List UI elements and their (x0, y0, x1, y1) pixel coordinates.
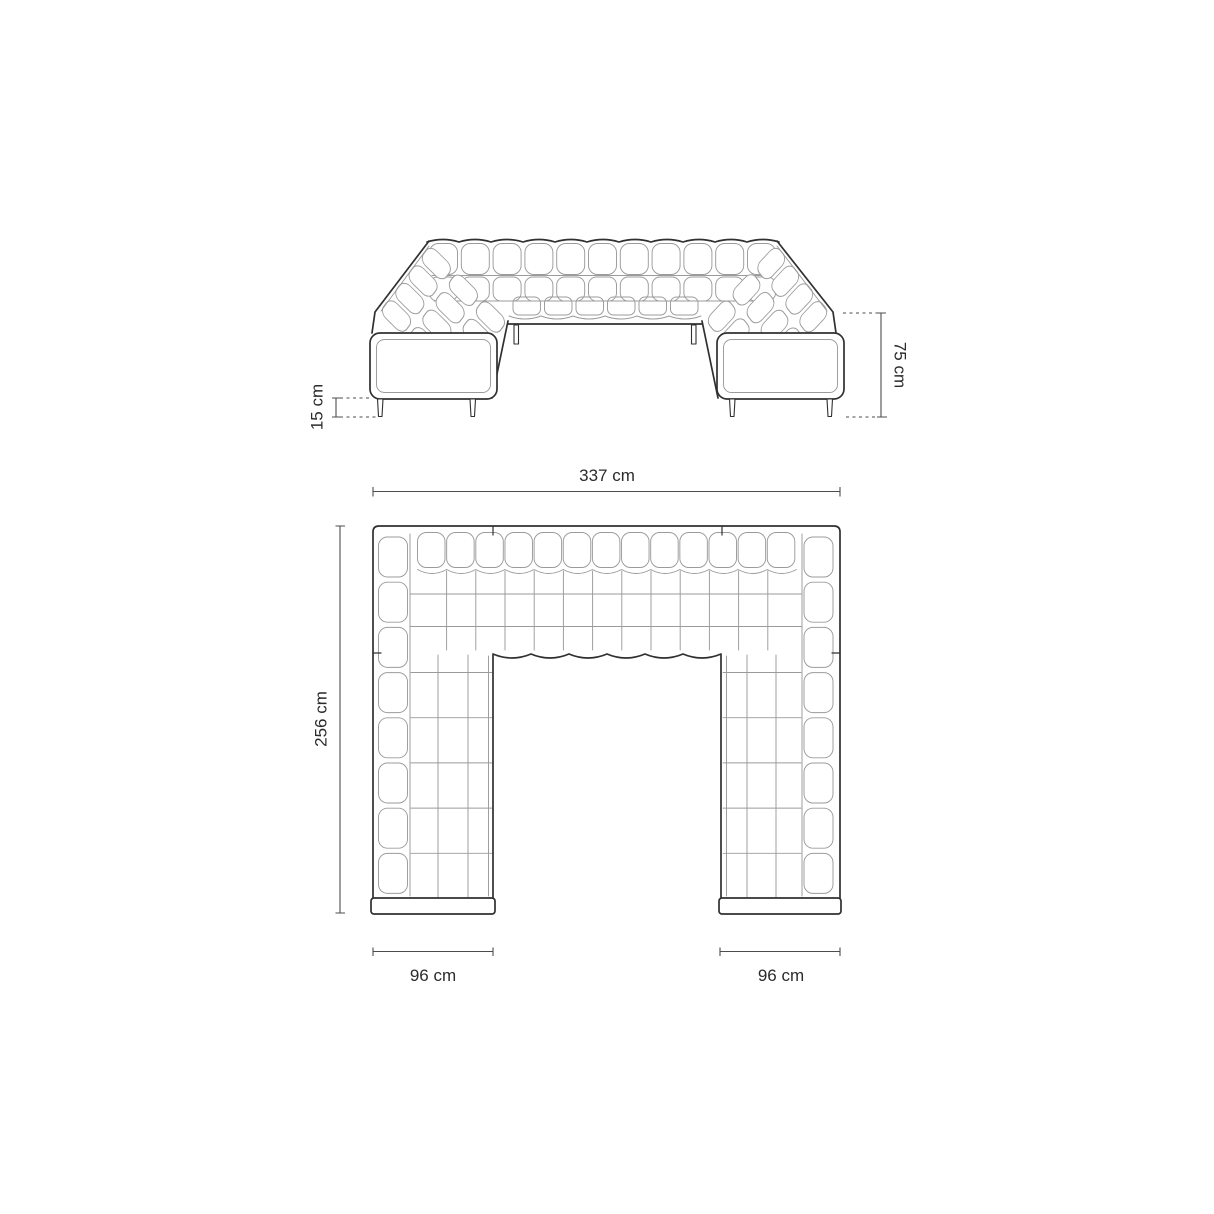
right-arm-width-dimension-label: 96 cm (758, 966, 804, 985)
plan-right-arm-cushions (804, 537, 833, 893)
top-plan-view: 337 cm 256 cm 96 cm 96 cm (311, 466, 841, 985)
dimension-leg-height: 15 cm (307, 384, 377, 430)
left-arm-width-dimension-label: 96 cm (410, 966, 456, 985)
dimension-total-width: 337 cm (373, 466, 840, 497)
front-elevation-view: 15 cm 75 cm (307, 240, 909, 431)
total-height-dimension-label: 75 cm (891, 342, 910, 388)
diagram-canvas: 15 cm 75 cm (0, 0, 1214, 1214)
leg-height-dimension-label: 15 cm (307, 384, 326, 430)
dimension-total-depth: 256 cm (311, 526, 345, 913)
plan-module-joints (373, 526, 840, 653)
plan-sofa-outline (373, 526, 840, 898)
elevation-center-legs (514, 325, 696, 344)
dimension-right-arm-width: 96 cm (720, 948, 840, 986)
elevation-arm-panels (370, 333, 844, 399)
total-width-dimension-label: 337 cm (579, 466, 635, 485)
plan-tufting-grid (410, 534, 802, 897)
plan-left-arm-cushions (379, 537, 408, 893)
plan-back-cushions (418, 533, 795, 568)
plan-arm-end-caps (371, 898, 841, 914)
total-depth-dimension-label: 256 cm (311, 691, 330, 747)
dimension-left-arm-width: 96 cm (373, 948, 493, 986)
elevation-panel-legs (378, 399, 833, 417)
dimension-total-height: 75 cm (843, 313, 910, 417)
sofa-dimension-diagram: 15 cm 75 cm (0, 0, 1214, 1214)
